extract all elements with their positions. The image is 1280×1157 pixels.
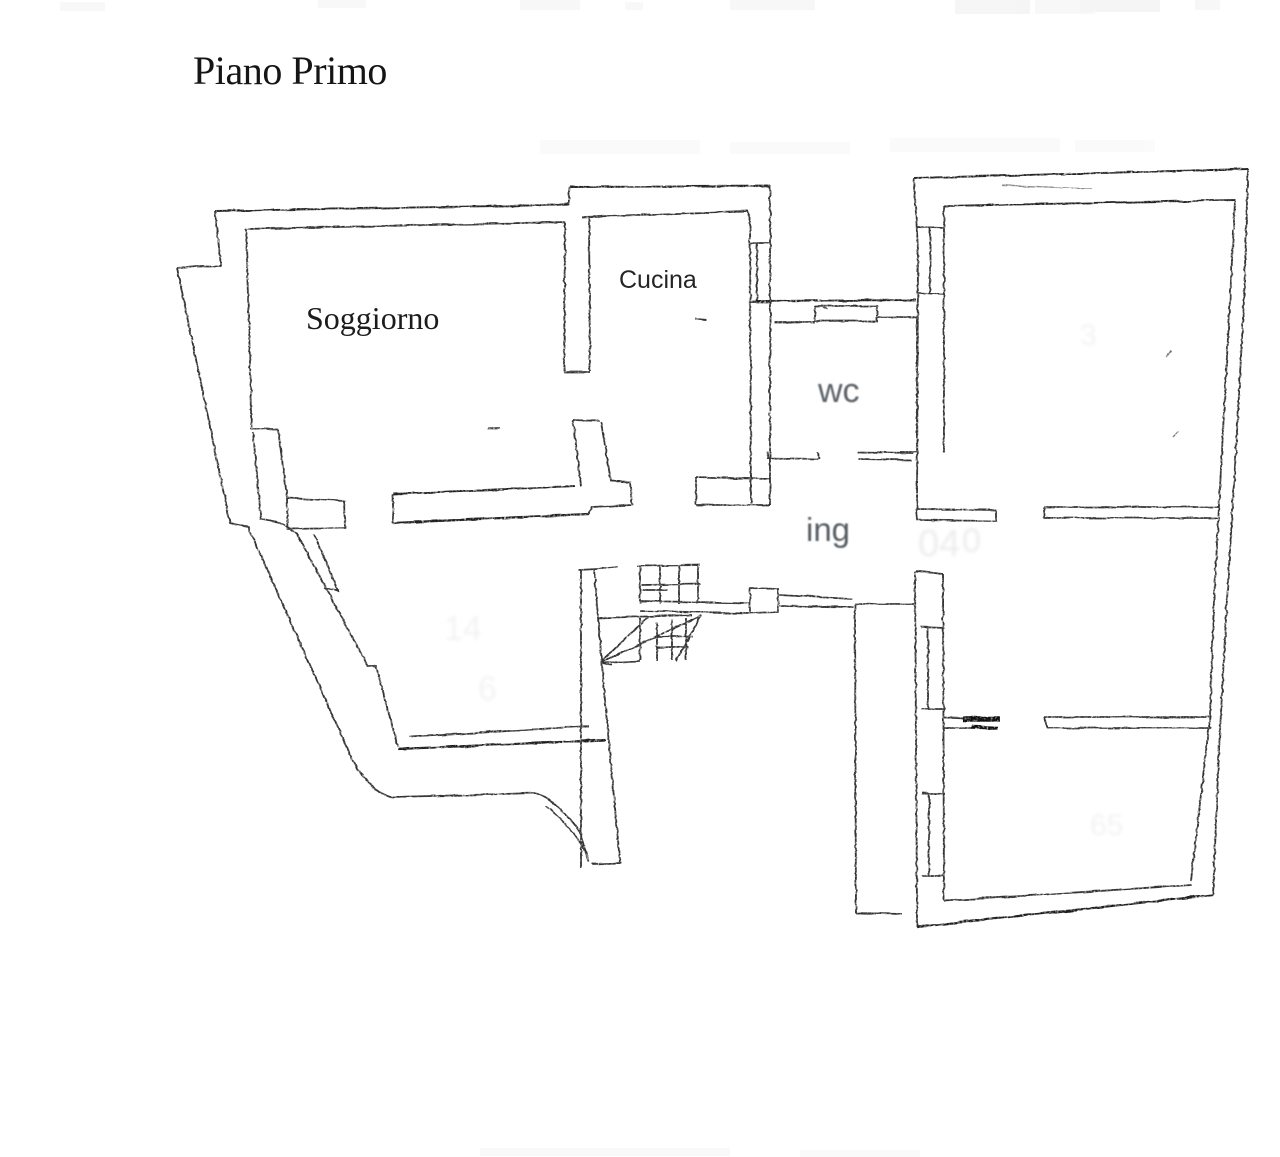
svg-text:ing: ing	[806, 511, 850, 548]
svg-text:Soggiorno: Soggiorno	[306, 300, 439, 336]
svg-text:6: 6	[478, 670, 497, 708]
svg-text:65: 65	[1090, 809, 1123, 842]
svg-text:0: 0	[962, 522, 981, 560]
svg-text:Cucina: Cucina	[619, 266, 697, 294]
svg-text:04: 04	[918, 523, 960, 565]
svg-text:Piano Primo: Piano Primo	[193, 48, 387, 93]
svg-text:3: 3	[1080, 319, 1097, 352]
svg-text:14: 14	[444, 610, 482, 648]
svg-text:wc: wc	[817, 372, 860, 410]
